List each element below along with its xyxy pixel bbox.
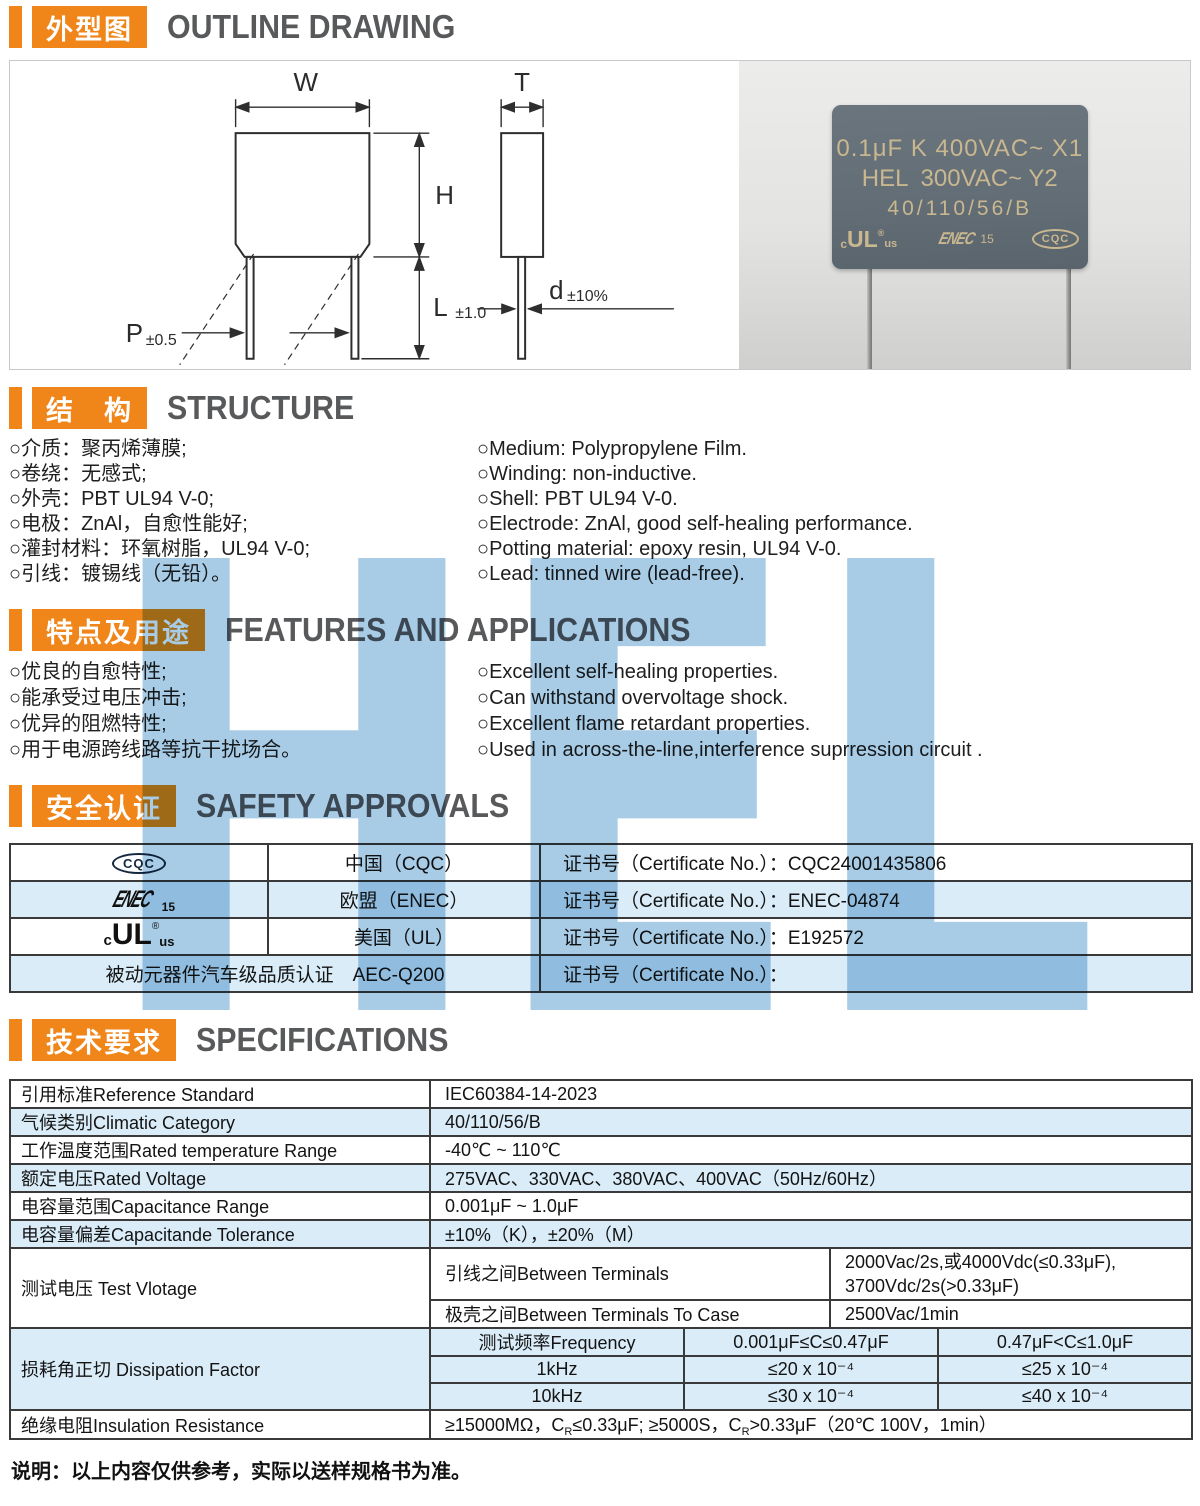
spec-value: ≤30 x 10⁻⁴ <box>684 1383 938 1410</box>
section-title-en: SAFETY APPROVALS <box>196 785 509 827</box>
section-title-cn: 技术要求 <box>32 1019 176 1061</box>
list-item: ○Can withstand overvoltage shock. <box>477 685 1191 711</box>
table-row: CQC 中国（CQC） 证书号（Certificate No.）：CQC2400… <box>10 844 1192 881</box>
dim-label-h: H <box>435 182 454 210</box>
section-header-structure: 结 构 STRUCTURE <box>9 387 1191 429</box>
section-accent-bar <box>9 785 22 827</box>
cul-us-mark-icon: cUL®us <box>840 229 897 250</box>
spec-value: ≤20 x 10⁻⁴ <box>684 1356 938 1383</box>
section-title-en: FEATURES AND APPLICATIONS <box>225 609 691 651</box>
country-cell: 中国（CQC） <box>268 844 540 881</box>
spec-label: 工作温度范围Rated temperature Range <box>10 1136 430 1164</box>
photo-lead-left <box>867 267 872 369</box>
spec-sub-label: 10kHz <box>430 1383 684 1410</box>
outline-drawing-panel: W H L ±1.0 P ±0.5 T <box>9 60 1191 370</box>
front-lead-right <box>351 257 358 359</box>
section-title-en: OUTLINE DRAWING <box>167 6 455 48</box>
enec-mark-icon: ENEC15 <box>935 229 994 249</box>
list-item: ○优异的阻燃特性; <box>9 711 477 737</box>
list-item: ○电极：ZnAl，自愈性能好; <box>9 512 477 537</box>
list-item: ○Winding: non-inductive. <box>477 462 1191 487</box>
dim-label-p: P <box>126 320 143 348</box>
spec-label: 额定电压Rated Voltage <box>10 1164 430 1192</box>
front-lead-left <box>247 257 254 359</box>
list-item: ○Lead: tinned wire (lead-free). <box>477 562 1191 587</box>
list-item: ○外壳：PBT UL94 V-0; <box>9 487 477 512</box>
spec-sub-label: 引线之间Between Terminals <box>430 1248 830 1300</box>
enec-logo-icon: ENEC15 <box>103 886 175 914</box>
table-row: 被动元器件汽车级品质认证 AEC-Q200 证书号（Certificate No… <box>10 955 1192 992</box>
certificate-cell: 证书号（Certificate No.）：E192572 <box>540 918 1192 955</box>
features-lists: ○优良的自愈特性; ○能承受过电压冲击; ○优异的阻燃特性; ○用于电源跨线路等… <box>9 659 1191 763</box>
table-row: 测试电压 Test Vlotage 引线之间Between Terminals … <box>10 1248 1192 1300</box>
section-accent-bar <box>9 609 22 651</box>
capacitor-body: 0.1μF K 400VAC~ X1 HEL 300VAC~ Y2 40/110… <box>832 105 1088 269</box>
structure-lists: ○介质：聚丙烯薄膜; ○卷绕：无感式; ○外壳：PBT UL94 V-0; ○电… <box>9 437 1191 587</box>
specifications-table: 引用标准Reference Standard IEC60384-14-2023 … <box>9 1079 1193 1440</box>
table-row: 损耗角正切 Dissipation Factor 测试频率Frequency 0… <box>10 1328 1192 1356</box>
section-header-safety: 安全认证 SAFETY APPROVALS <box>9 785 1191 827</box>
lead-kink-dash-right <box>285 254 359 365</box>
spec-value: 0.001μF ~ 1.0μF <box>430 1192 1192 1220</box>
spec-label: 绝缘电阻Insulation Resistance <box>10 1410 430 1439</box>
section-title-cn: 外型图 <box>32 6 147 48</box>
list-item: ○Excellent self-healing properties. <box>477 659 1191 685</box>
section-title-cn: 结 构 <box>32 387 147 429</box>
section-accent-bar <box>9 1019 22 1061</box>
spec-label: 损耗角正切 Dissipation Factor <box>10 1328 430 1410</box>
certificate-number: CQC24001435806 <box>788 854 946 875</box>
section-header-specs: 技术要求 SPECIFICATIONS <box>9 1019 1191 1061</box>
dim-label-l-tol: ±1.0 <box>455 305 486 322</box>
section-accent-bar <box>9 387 22 429</box>
cap-climatic-code: 40/110/56/B <box>832 197 1088 221</box>
section-title-en: SPECIFICATIONS <box>196 1019 448 1061</box>
disclaimer-note: 说明：以上内容仅供参考，实际以送样规格书为准。 <box>9 1455 1191 1484</box>
dim-label-d-tol: ±10% <box>567 288 608 305</box>
lead-kink-dash-left <box>180 254 254 365</box>
list-item: ○Medium: Polypropylene Film. <box>477 437 1191 462</box>
table-row: 工作温度范围Rated temperature Range -40℃ ~ 110… <box>10 1136 1192 1164</box>
list-item: ○卷绕：无感式; <box>9 462 477 487</box>
dim-label-l: L <box>433 294 447 322</box>
cap-certification-marks: cUL®us ENEC15 CQC <box>832 229 1088 250</box>
structure-list-en: ○Medium: Polypropylene Film. ○Winding: n… <box>477 437 1191 587</box>
list-item: ○Excellent flame retardant properties. <box>477 711 1191 737</box>
certificate-number: ENEC-04874 <box>788 891 900 912</box>
cap-marking-line2: HEL 300VAC~ Y2 <box>832 165 1088 193</box>
spec-value: IEC60384-14-2023 <box>430 1080 1192 1108</box>
features-list-en: ○Excellent self-healing properties. ○Can… <box>477 659 1191 763</box>
list-item: ○灌封材料：环氧树脂，UL94 V-0; <box>9 537 477 562</box>
list-item: ○Potting material: epoxy resin, UL94 V-0… <box>477 537 1191 562</box>
dim-label-d: d <box>549 277 563 305</box>
list-item: ○Shell: PBT UL94 V-0. <box>477 487 1191 512</box>
cap-brand: HEL <box>862 165 909 193</box>
spec-label: 电容量偏差Capacitande Tolerance <box>10 1220 430 1248</box>
spec-value: 40/110/56/B <box>430 1108 1192 1136</box>
spec-value: 2000Vac/2s,或4000Vdc(≤0.33μF), 3700Vdc/2s… <box>830 1248 1192 1300</box>
spec-value: ≥15000MΩ，CR≤0.33μF; ≥5000S，CR>0.33μF（20℃… <box>430 1410 1192 1439</box>
outline-drawing-diagram: W H L ±1.0 P ±0.5 T <box>10 61 739 369</box>
spec-value: -40℃ ~ 110℃ <box>430 1136 1192 1164</box>
spec-label: 电容量范围Capacitance Range <box>10 1192 430 1220</box>
spec-sub-header: 测试频率Frequency <box>430 1328 684 1356</box>
spec-label: 引用标准Reference Standard <box>10 1080 430 1108</box>
capacitor-side-outline <box>501 133 543 257</box>
country-cell: 美国（UL） <box>268 918 540 955</box>
table-row: 绝缘电阻Insulation Resistance ≥15000MΩ，CR≤0.… <box>10 1410 1192 1439</box>
spec-value: ≤25 x 10⁻⁴ <box>938 1356 1192 1383</box>
safety-approvals-table: CQC 中国（CQC） 证书号（Certificate No.）：CQC2400… <box>9 843 1193 993</box>
table-row: 引用标准Reference Standard IEC60384-14-2023 <box>10 1080 1192 1108</box>
list-item: ○用于电源跨线路等抗干扰场合。 <box>9 737 477 763</box>
list-item: ○Used in across-the-line,interference su… <box>477 737 1191 763</box>
cap-rating-y2: 300VAC~ Y2 <box>921 165 1058 193</box>
certificate-cell: 证书号（Certificate No.）：CQC24001435806 <box>540 844 1192 881</box>
table-row: 电容量偏差Capacitande Tolerance ±10%（K），±20%（… <box>10 1220 1192 1248</box>
side-lead <box>518 257 525 359</box>
spec-value: ≤40 x 10⁻⁴ <box>938 1383 1192 1410</box>
section-accent-bar <box>9 6 22 48</box>
cqc-logo-icon: CQC <box>112 853 166 874</box>
spec-label: 测试电压 Test Vlotage <box>10 1248 430 1328</box>
list-item: ○介质：聚丙烯薄膜; <box>9 437 477 462</box>
table-row: cUL®us 美国（UL） 证书号（Certificate No.）：E1925… <box>10 918 1192 955</box>
table-row: ENEC15 欧盟（ENEC） 证书号（Certificate No.）：ENE… <box>10 881 1192 918</box>
cap-marking-line1: 0.1μF K 400VAC~ X1 <box>832 135 1088 163</box>
spec-value: 2500Vac/1min <box>830 1300 1192 1328</box>
certificate-cell: 证书号（Certificate No.）： <box>540 955 1192 992</box>
spec-label: 气候类别Climatic Category <box>10 1108 430 1136</box>
section-title-cn: 安全认证 <box>32 785 176 827</box>
spec-sub-header: 0.47μF<C≤1.0μF <box>938 1328 1192 1356</box>
table-row: 额定电压Rated Voltage 275VAC、330VAC、380VAC、4… <box>10 1164 1192 1192</box>
section-header-features: 特点及用途 FEATURES AND APPLICATIONS <box>9 609 1191 651</box>
photo-lead-right <box>1066 267 1071 369</box>
section-title-en: STRUCTURE <box>167 387 354 429</box>
table-row: 电容量范围Capacitance Range 0.001μF ~ 1.0μF <box>10 1192 1192 1220</box>
certificate-cell: 证书号（Certificate No.）：ENEC-04874 <box>540 881 1192 918</box>
dim-label-p-tol: ±0.5 <box>146 332 177 349</box>
section-title-cn: 特点及用途 <box>32 609 205 651</box>
dim-label-w: W <box>294 69 319 97</box>
dim-label-t: T <box>514 69 530 97</box>
aec-q200-cell: 被动元器件汽车级品质认证 AEC-Q200 <box>10 955 540 992</box>
section-header-outline: 外型图 OUTLINE DRAWING <box>9 6 1191 48</box>
spec-sub-header: 0.001μF≤C≤0.47μF <box>684 1328 938 1356</box>
list-item: ○引线：镀锡线（无铅）。 <box>9 562 477 587</box>
capacitor-photo: 0.1μF K 400VAC~ X1 HEL 300VAC~ Y2 40/110… <box>739 61 1190 369</box>
cul-us-logo-icon: cUL®us <box>104 922 175 948</box>
country-cell: 欧盟（ENEC） <box>268 881 540 918</box>
list-item: ○优良的自愈特性; <box>9 659 477 685</box>
spec-sub-label: 极壳之间Between Terminals To Case <box>430 1300 830 1328</box>
structure-list-cn: ○介质：聚丙烯薄膜; ○卷绕：无感式; ○外壳：PBT UL94 V-0; ○电… <box>9 437 477 587</box>
table-row: 气候类别Climatic Category 40/110/56/B <box>10 1108 1192 1136</box>
certificate-number: E192572 <box>788 928 864 949</box>
features-list-cn: ○优良的自愈特性; ○能承受过电压冲击; ○优异的阻燃特性; ○用于电源跨线路等… <box>9 659 477 763</box>
spec-value: 275VAC、330VAC、380VAC、400VAC（50Hz/60Hz） <box>430 1164 1192 1192</box>
cqc-mark-icon: CQC <box>1032 229 1079 249</box>
list-item: ○能承受过电压冲击; <box>9 685 477 711</box>
spec-value: ±10%（K），±20%（M） <box>430 1220 1192 1248</box>
datasheet-page: 外型图 OUTLINE DRAWING W <box>0 0 1200 1484</box>
list-item: ○Electrode: ZnAl, good self-healing perf… <box>477 512 1191 537</box>
spec-sub-label: 1kHz <box>430 1356 684 1383</box>
capacitor-front-outline <box>236 133 370 257</box>
